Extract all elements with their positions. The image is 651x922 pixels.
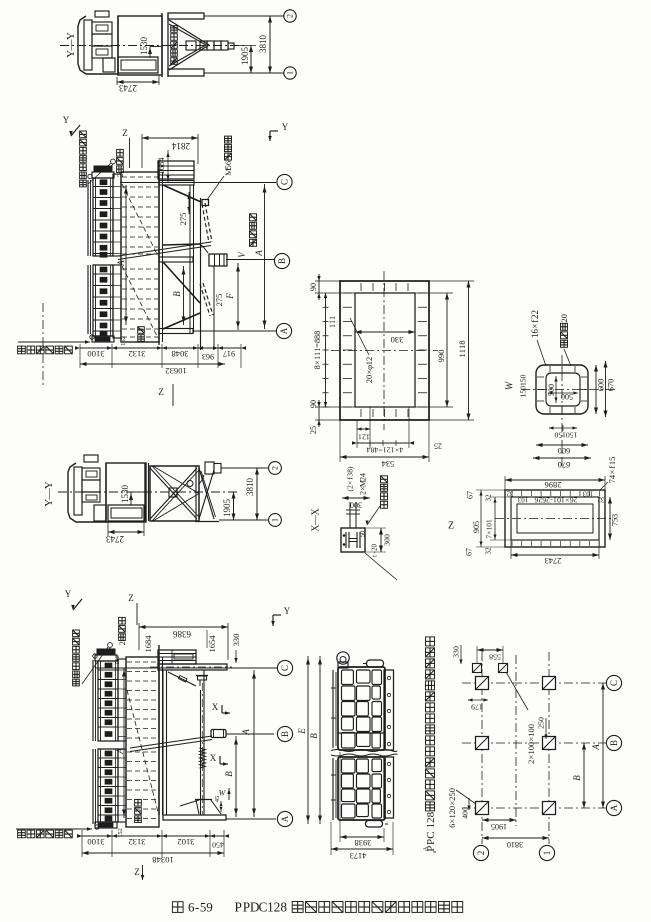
- svg-text:0: 0: [245, 477, 255, 482]
- svg-text:A: A: [279, 327, 289, 334]
- svg-text:3: 3: [582, 490, 586, 498]
- svg-text:0: 0: [87, 349, 91, 359]
- svg-text:0: 0: [558, 460, 562, 469]
- svg-text:A: A: [280, 815, 290, 822]
- svg-text:1: 1: [286, 71, 295, 75]
- svg-text:5: 5: [222, 498, 232, 503]
- svg-text:5: 5: [240, 46, 250, 51]
- svg-text:C: C: [425, 831, 437, 838]
- svg-text:5: 5: [434, 441, 438, 450]
- svg-text:B: B: [309, 733, 319, 739]
- svg-text:8: 8: [425, 811, 437, 817]
- svg-text:3: 3: [202, 352, 206, 361]
- svg-text:0: 0: [537, 717, 546, 721]
- svg-text:3: 3: [545, 556, 549, 565]
- svg-text:3: 3: [610, 514, 619, 518]
- svg-text:C: C: [280, 665, 290, 671]
- svg-text:Y: Y: [282, 122, 289, 132]
- svg-text:0: 0: [606, 379, 615, 383]
- svg-text:×: ×: [346, 481, 355, 485]
- svg-text:1: 1: [542, 851, 552, 856]
- svg-text:E: E: [297, 728, 307, 735]
- svg-text:5: 5: [491, 822, 495, 831]
- svg-text:2: 2: [597, 496, 601, 503]
- svg-text:1: 1: [271, 518, 280, 522]
- svg-text:0: 0: [559, 314, 569, 318]
- svg-text:0: 0: [309, 283, 318, 287]
- svg-text:5: 5: [607, 457, 617, 461]
- svg-text:2: 2: [484, 547, 492, 551]
- svg-text:P: P: [234, 900, 241, 915]
- svg-text:0: 0: [596, 379, 605, 383]
- svg-text:Y: Y: [63, 115, 70, 125]
- svg-text:×: ×: [530, 324, 540, 329]
- svg-text:0: 0: [436, 350, 446, 354]
- svg-text:F: F: [225, 293, 235, 300]
- svg-text:2: 2: [286, 14, 295, 18]
- svg-text:A: A: [254, 250, 264, 257]
- svg-text:1: 1: [358, 432, 362, 441]
- svg-text:2: 2: [128, 349, 132, 359]
- svg-text:X: X: [210, 753, 217, 763]
- svg-text:X: X: [310, 508, 321, 516]
- svg-text:Y: Y: [284, 606, 291, 616]
- svg-text:2: 2: [364, 357, 374, 361]
- svg-text:Z: Z: [134, 867, 140, 877]
- svg-text:2: 2: [476, 851, 486, 856]
- svg-text:4: 4: [367, 445, 371, 454]
- svg-text:0: 0: [87, 837, 91, 847]
- svg-text:0: 0: [547, 384, 556, 388]
- svg-text:-: -: [195, 899, 199, 914]
- svg-text:8: 8: [171, 349, 175, 359]
- svg-text:8: 8: [313, 331, 322, 335]
- svg-text:A: A: [241, 729, 251, 736]
- svg-text:6: 6: [534, 495, 538, 504]
- svg-text:0: 0: [561, 392, 565, 401]
- svg-text:5: 5: [309, 426, 318, 430]
- svg-text:B: B: [280, 731, 290, 737]
- svg-text:0: 0: [350, 500, 354, 509]
- svg-text:C: C: [609, 680, 619, 686]
- svg-text:C: C: [280, 179, 290, 185]
- svg-text:2: 2: [165, 366, 169, 376]
- svg-text:0: 0: [370, 543, 378, 547]
- svg-text:5: 5: [214, 796, 221, 799]
- svg-text:Z: Z: [128, 593, 134, 603]
- svg-text:8: 8: [280, 900, 287, 915]
- svg-text:6: 6: [188, 899, 195, 914]
- svg-text:4: 4: [359, 473, 368, 477]
- svg-text:A: A: [423, 846, 429, 851]
- svg-text:1: 1: [485, 519, 494, 523]
- svg-text:2: 2: [177, 837, 181, 847]
- svg-text:B: B: [224, 771, 234, 777]
- svg-text:3: 3: [118, 83, 123, 93]
- svg-text:0: 0: [120, 484, 130, 489]
- svg-text:A: A: [116, 260, 126, 267]
- svg-text:0: 0: [231, 634, 241, 638]
- svg-text:4: 4: [171, 141, 176, 151]
- svg-text:f: f: [530, 320, 540, 323]
- svg-text:5: 5: [214, 294, 224, 298]
- svg-text:B: B: [277, 258, 287, 264]
- svg-text:0: 0: [452, 646, 461, 650]
- svg-text:0: 0: [554, 430, 558, 439]
- svg-text:2: 2: [484, 494, 492, 498]
- svg-text:0: 0: [258, 34, 268, 39]
- svg-text:3: 3: [517, 496, 521, 504]
- svg-text:0: 0: [309, 400, 318, 404]
- svg-text:3: 3: [350, 851, 354, 860]
- svg-text:5: 5: [178, 213, 188, 217]
- svg-text:5: 5: [472, 521, 481, 525]
- svg-text:8: 8: [152, 855, 156, 865]
- svg-text:0: 0: [212, 840, 216, 849]
- svg-text:9: 9: [471, 702, 475, 711]
- svg-text:A: A: [609, 804, 619, 811]
- svg-text:7: 7: [466, 491, 475, 495]
- svg-text:7: 7: [223, 349, 227, 358]
- svg-text:8: 8: [457, 340, 467, 344]
- svg-text:0: 0: [139, 36, 149, 41]
- svg-text:2: 2: [118, 641, 127, 645]
- svg-text:t: t: [370, 555, 378, 557]
- svg-text:6: 6: [545, 480, 549, 489]
- svg-text:8: 8: [489, 652, 493, 661]
- svg-text:B: B: [572, 775, 582, 781]
- svg-text:A: A: [591, 744, 601, 751]
- svg-text:Y: Y: [43, 481, 55, 489]
- svg-text:P: P: [425, 839, 437, 845]
- svg-text:7: 7: [465, 548, 474, 552]
- svg-text:X: X: [212, 702, 219, 712]
- svg-text:2: 2: [530, 310, 540, 315]
- svg-text:0: 0: [383, 534, 392, 538]
- svg-text:2: 2: [271, 466, 280, 470]
- svg-text:6: 6: [172, 629, 177, 639]
- svg-text:0: 0: [507, 840, 511, 849]
- svg-text:Y: Y: [65, 589, 72, 599]
- svg-text:Z: Z: [158, 387, 164, 397]
- svg-text:×: ×: [607, 470, 617, 475]
- svg-text:B: B: [172, 291, 182, 297]
- svg-text:2: 2: [117, 828, 124, 831]
- svg-text:2: 2: [128, 837, 132, 847]
- svg-text:6: 6: [223, 161, 233, 165]
- svg-text:9: 9: [206, 899, 213, 914]
- svg-text:0: 0: [448, 788, 457, 792]
- svg-text:Y: Y: [65, 32, 77, 40]
- svg-text:3: 3: [105, 534, 110, 544]
- svg-text:Z: Z: [122, 128, 128, 138]
- svg-text:0: 0: [519, 374, 528, 378]
- svg-text:8: 8: [355, 838, 359, 847]
- svg-text:2: 2: [274, 900, 281, 915]
- svg-text:B: B: [609, 740, 619, 746]
- svg-text:0: 0: [391, 335, 395, 345]
- svg-text:0: 0: [359, 530, 366, 534]
- svg-text:1: 1: [328, 316, 337, 320]
- svg-text:f: f: [607, 466, 617, 469]
- svg-text:0: 0: [527, 724, 536, 728]
- svg-text:Z: Z: [448, 520, 454, 531]
- svg-text:2: 2: [506, 490, 510, 497]
- svg-text:2: 2: [114, 655, 121, 658]
- svg-text:2: 2: [120, 336, 127, 339]
- svg-text:0: 0: [558, 446, 562, 455]
